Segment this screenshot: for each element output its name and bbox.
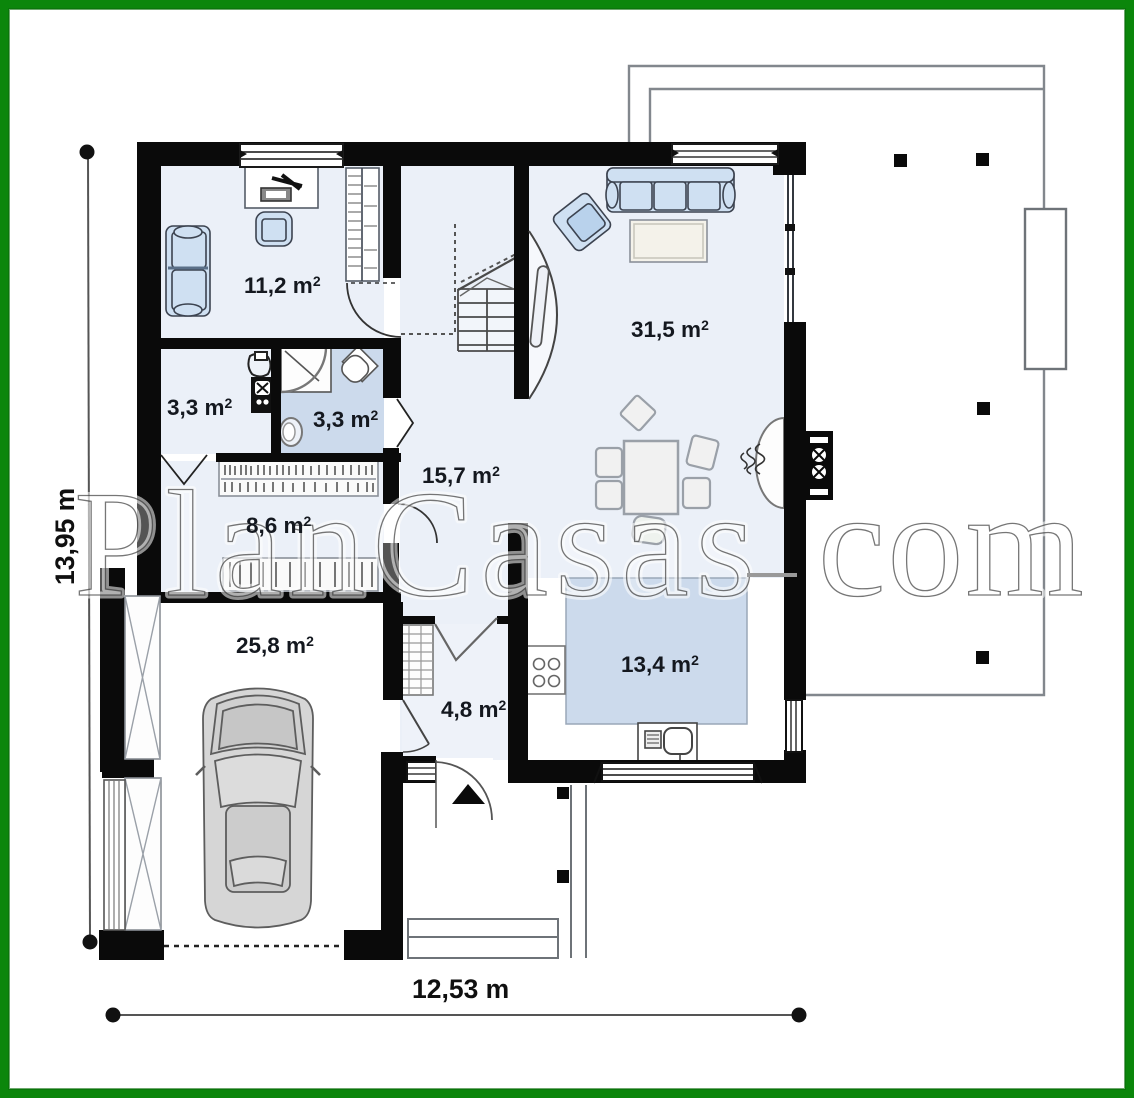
svg-text:25,8 m2: 25,8 m2 (236, 633, 314, 658)
svg-text:3,3 m2: 3,3 m2 (313, 407, 379, 432)
svg-text:3,3 m2: 3,3 m2 (167, 395, 233, 420)
svg-text:11,2 m2: 11,2 m2 (244, 273, 321, 298)
svg-text:8,6 m2: 8,6 m2 (246, 513, 312, 538)
svg-text:15,7 m2: 15,7 m2 (422, 463, 500, 488)
svg-text:13,4 m2: 13,4 m2 (621, 652, 699, 677)
svg-text:31,5 m2: 31,5 m2 (631, 317, 709, 342)
svg-text:com: com (818, 460, 1086, 628)
svg-text:PlanCasas: PlanCasas (74, 460, 762, 628)
svg-text:4,8 m2: 4,8 m2 (441, 697, 507, 722)
svg-text:12,53 m: 12,53 m (412, 974, 509, 1004)
